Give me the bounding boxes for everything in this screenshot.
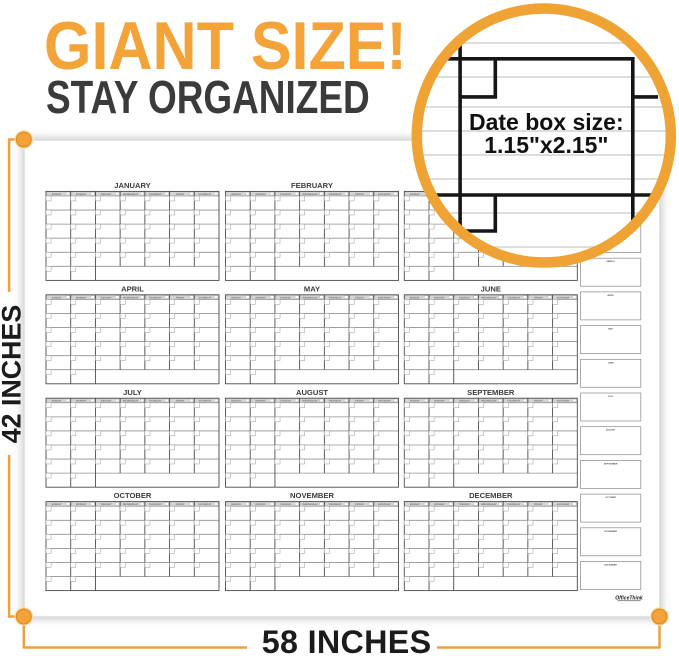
svg-text:APRIL: APRIL bbox=[121, 284, 144, 293]
svg-text:SEPTEMBER: SEPTEMBER bbox=[604, 463, 618, 465]
svg-text:SEPTEMBER: SEPTEMBER bbox=[467, 388, 515, 397]
svg-text:DECEMBER: DECEMBER bbox=[604, 565, 617, 567]
svg-text:JUNE: JUNE bbox=[608, 362, 614, 364]
svg-text:AUGUST: AUGUST bbox=[296, 388, 328, 397]
svg-text:OCTOBER: OCTOBER bbox=[114, 491, 152, 500]
svg-text:OfficeThink: OfficeThink bbox=[615, 595, 643, 601]
svg-text:MAY: MAY bbox=[304, 284, 320, 293]
svg-text:MAY: MAY bbox=[608, 328, 613, 331]
svg-text:OCTOBER: OCTOBER bbox=[605, 497, 616, 499]
svg-text:NOVEMBER: NOVEMBER bbox=[290, 491, 334, 500]
svg-text:MARCH: MARCH bbox=[607, 260, 616, 263]
svg-text:DECEMBER: DECEMBER bbox=[469, 491, 513, 500]
svg-text:JULY: JULY bbox=[608, 396, 614, 398]
svg-text:1.15"x2.15": 1.15"x2.15" bbox=[484, 132, 608, 158]
svg-text:NOVEMBER: NOVEMBER bbox=[604, 531, 617, 533]
svg-text:Date box size:: Date box size: bbox=[469, 109, 624, 135]
svg-text:JUNE: JUNE bbox=[481, 284, 501, 293]
svg-text:JANUARY: JANUARY bbox=[114, 181, 150, 190]
svg-text:FEBRUARY: FEBRUARY bbox=[291, 181, 333, 190]
svg-text:AUGUST: AUGUST bbox=[606, 429, 616, 432]
svg-text:APRIL: APRIL bbox=[607, 294, 614, 297]
svg-text:JULY: JULY bbox=[123, 388, 142, 397]
